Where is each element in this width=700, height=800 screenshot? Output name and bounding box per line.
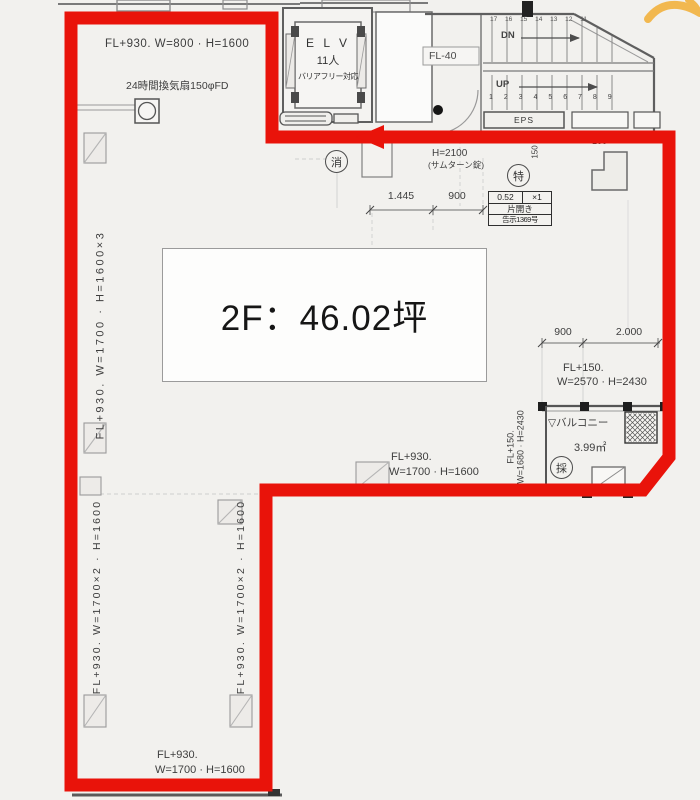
lease-boundary-overlay bbox=[0, 0, 700, 800]
floorplan-page: FL+930. W=800 · H=1600 24時間換気扇150φFD E L… bbox=[0, 0, 700, 800]
watermark-strokes bbox=[648, 0, 700, 19]
entry-direction-arrow bbox=[356, 125, 384, 149]
